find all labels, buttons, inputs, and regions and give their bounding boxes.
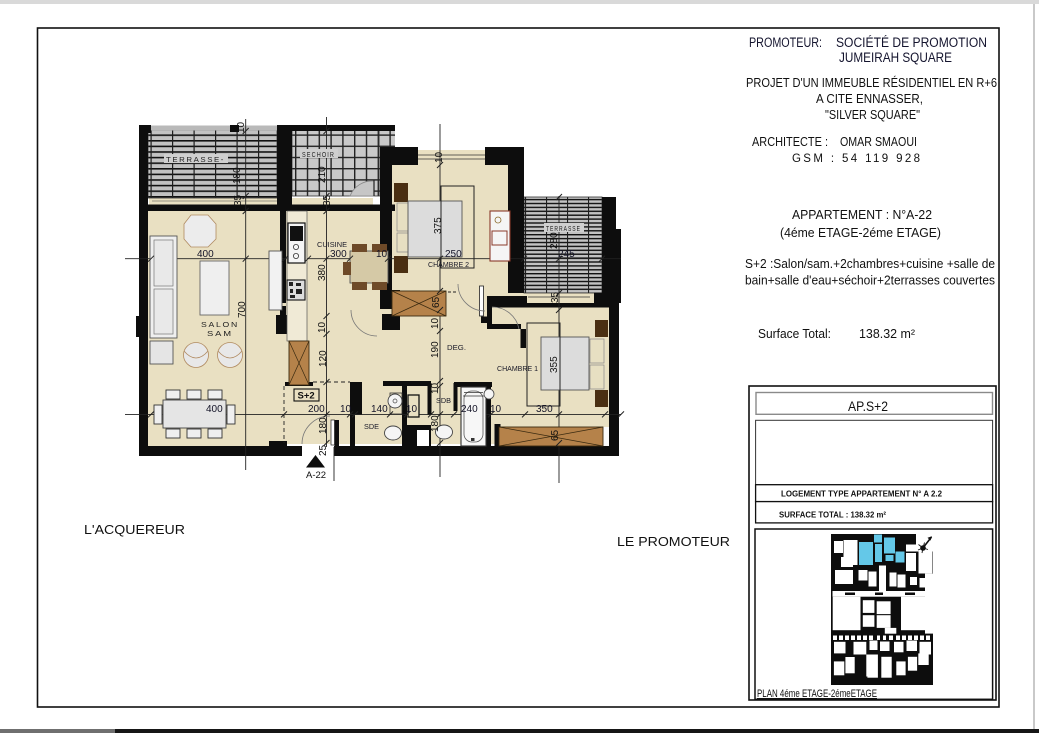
svg-text:10: 10 <box>340 404 352 415</box>
svg-text:375: 375 <box>433 217 444 234</box>
svg-text:A CITE ENNASSER,: A CITE ENNASSER, <box>816 92 923 106</box>
svg-text:A-22: A-22 <box>306 470 326 481</box>
svg-text:SALON: SALON <box>201 320 239 329</box>
svg-text:210: 210 <box>317 166 328 183</box>
svg-text:35: 35 <box>322 194 333 206</box>
svg-text:400: 400 <box>197 249 214 260</box>
svg-text:LE PROMOTEUR: LE PROMOTEUR <box>617 535 730 549</box>
svg-text:180: 180 <box>232 167 243 184</box>
svg-text:180: 180 <box>430 415 441 432</box>
svg-text:10: 10 <box>430 317 441 329</box>
svg-text:ARCHITECTE :: ARCHITECTE : <box>752 135 828 149</box>
svg-text:SDE: SDE <box>364 422 379 431</box>
svg-text:OMAR SMAOUI: OMAR SMAOUI <box>840 135 917 149</box>
svg-text:245: 245 <box>558 249 575 260</box>
svg-text:JUMEIRAH SQUARE: JUMEIRAH SQUARE <box>839 50 952 65</box>
svg-text:190: 190 <box>430 341 441 358</box>
svg-text:200: 200 <box>308 404 325 415</box>
svg-text:Surface Total:: Surface Total: <box>758 326 831 341</box>
svg-text:SURFACE TOTAL : 138.32 m²: SURFACE TOTAL : 138.32 m² <box>779 510 886 520</box>
svg-text:700: 700 <box>237 301 248 318</box>
svg-text:L'ACQUEREUR: L'ACQUEREUR <box>84 523 185 537</box>
svg-text:DEG.: DEG. <box>447 343 466 352</box>
svg-text:350: 350 <box>536 404 553 415</box>
svg-text:APPARTEMENT : N°A-22: APPARTEMENT : N°A-22 <box>792 207 932 222</box>
svg-text:10: 10 <box>376 249 388 260</box>
svg-text:400: 400 <box>206 404 223 415</box>
svg-text:300: 300 <box>330 249 347 260</box>
svg-text:CHAMBRE 2: CHAMBRE 2 <box>428 260 469 269</box>
svg-text:138.32 m²: 138.32 m² <box>859 326 916 341</box>
svg-text:SOCIÉTÉ DE PROMOTION: SOCIÉTÉ DE PROMOTION <box>836 35 987 50</box>
svg-text:PROJET D'UN IMMEUBLE RÉSIDENTI: PROJET D'UN IMMEUBLE RÉSIDENTIEL EN R+6 <box>746 75 997 90</box>
svg-text:240: 240 <box>461 404 478 415</box>
svg-text:S+2 :Salon/sam.+2chambres+cuis: S+2 :Salon/sam.+2chambres+cuisine +salle… <box>745 256 995 271</box>
svg-text:CUISINE: CUISINE <box>317 240 347 249</box>
svg-text:65: 65 <box>550 429 561 441</box>
svg-text:180: 180 <box>318 417 329 434</box>
svg-text:AP.S+2: AP.S+2 <box>848 399 888 414</box>
svg-text:380: 380 <box>317 264 328 281</box>
svg-text:LOGEMENT TYPE APPARTEMENT N° A: LOGEMENT TYPE APPARTEMENT N° A 2.2 <box>781 489 942 499</box>
svg-text:10: 10 <box>317 321 328 333</box>
svg-text:355: 355 <box>549 356 560 373</box>
svg-text:bain+salle d'eau+séchoir+2terr: bain+salle d'eau+séchoir+2terrasses couv… <box>745 273 995 288</box>
svg-text:120: 120 <box>318 350 329 367</box>
svg-text:250: 250 <box>445 249 462 260</box>
svg-text:GSM : 54 119 928: GSM : 54 119 928 <box>792 153 923 165</box>
svg-text:35: 35 <box>233 194 244 206</box>
svg-text:10: 10 <box>430 382 441 394</box>
svg-text:(4éme ETAGE-2éme ETAGE): (4éme ETAGE-2éme ETAGE) <box>780 225 941 240</box>
svg-text:PROMOTEUR:: PROMOTEUR: <box>749 35 822 50</box>
svg-text:10: 10 <box>434 151 445 163</box>
svg-text:140: 140 <box>371 404 388 415</box>
svg-text:"SILVER SQUARE": "SILVER SQUARE" <box>825 108 920 122</box>
svg-text:S+2: S+2 <box>298 391 315 402</box>
svg-text:25: 25 <box>318 444 329 456</box>
svg-text:TERRASSE: TERRASSE <box>546 224 581 233</box>
svg-text:SAM: SAM <box>207 329 233 338</box>
svg-text:280: 280 <box>549 232 560 249</box>
svg-text:SDB: SDB <box>436 396 451 405</box>
svg-text:PLAN 4éme ETAGE-2émeETAGE: PLAN 4éme ETAGE-2émeETAGE <box>757 688 877 700</box>
svg-text:SECHOIR: SECHOIR <box>302 150 335 159</box>
svg-text:CHAMBRE 1: CHAMBRE 1 <box>497 364 538 373</box>
svg-text:65: 65 <box>431 296 442 308</box>
svg-text:TERRASSE-: TERRASSE- <box>166 155 225 164</box>
